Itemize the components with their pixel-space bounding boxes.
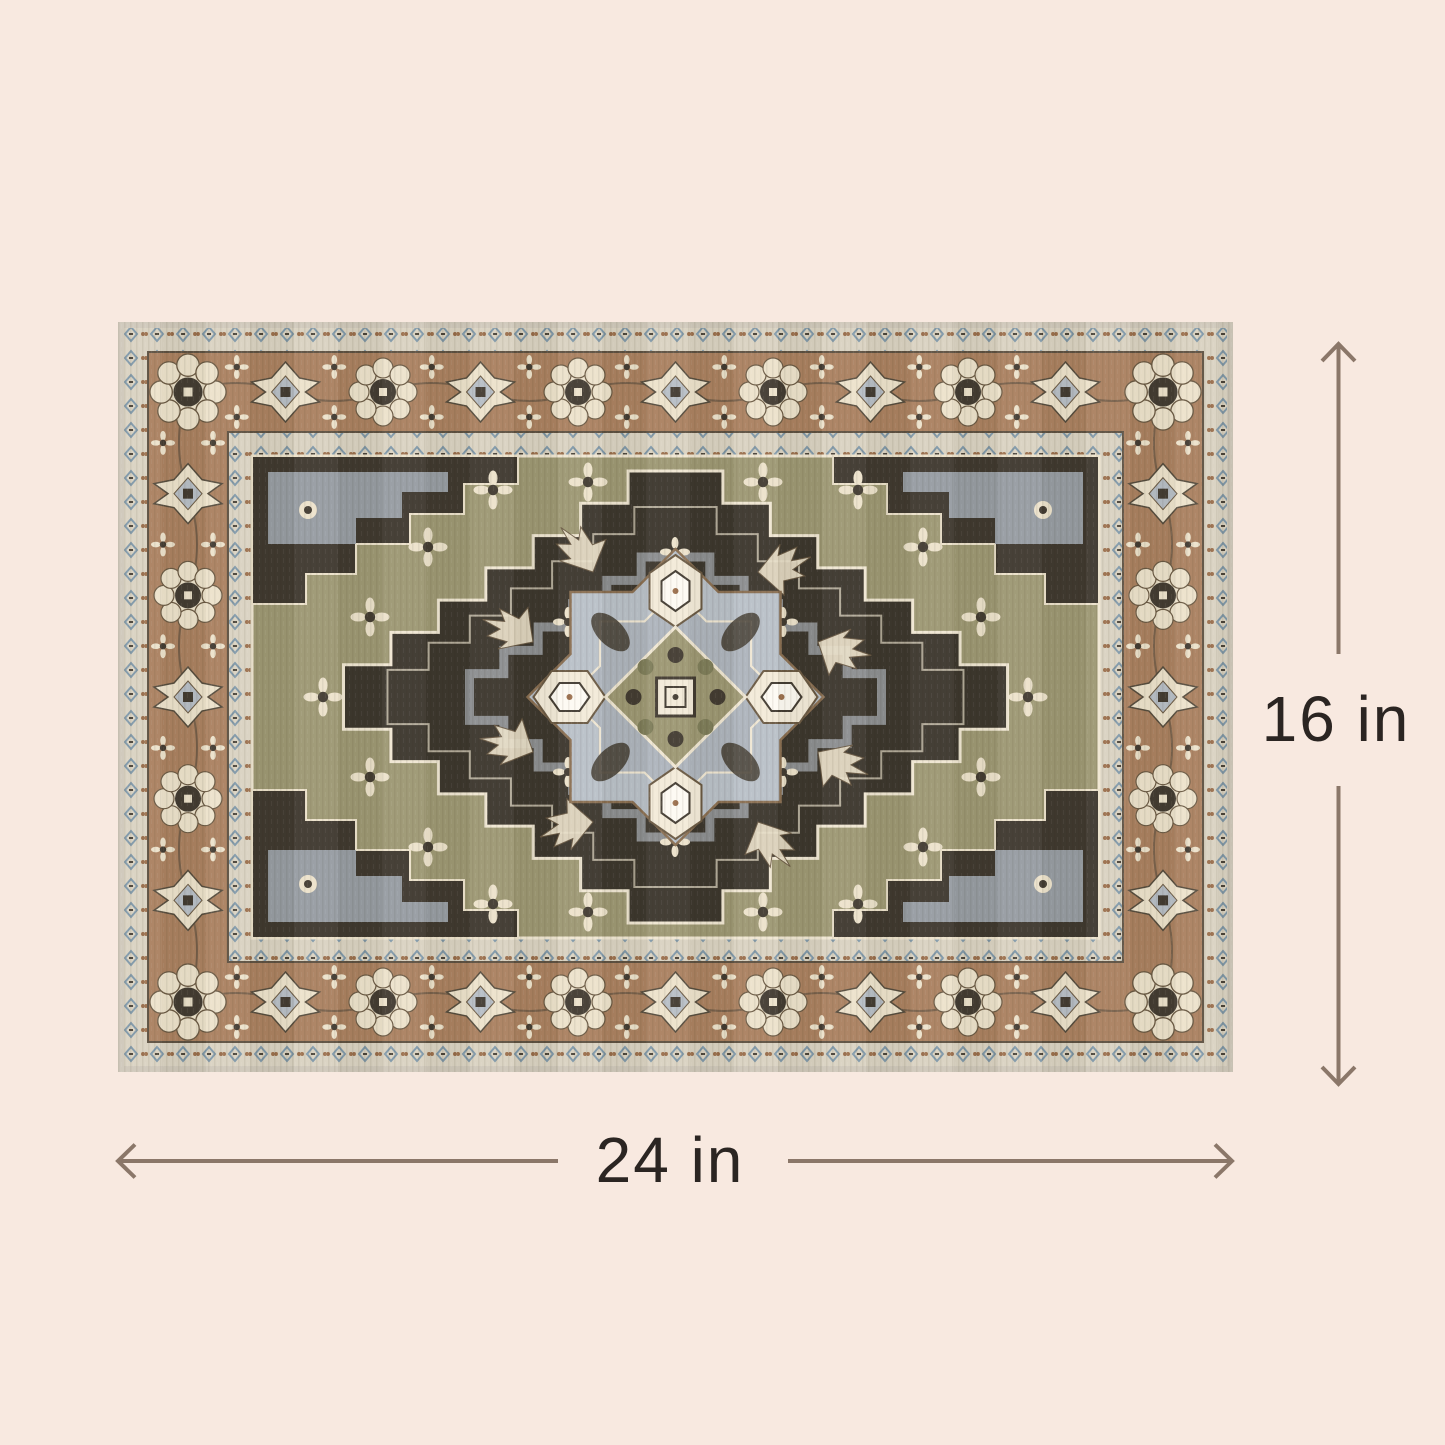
product-dimension-canvas: 16 in 24 in (0, 0, 1445, 1445)
rug-weave-texture (118, 322, 1233, 1072)
arrow-down-icon (1322, 1067, 1355, 1084)
arrow-right-icon (1215, 1145, 1232, 1178)
height-dimension-label: 16 in (1262, 682, 1411, 756)
width-dimension-label: 24 in (596, 1123, 745, 1197)
rug-image (118, 322, 1233, 1072)
arrow-left-icon (118, 1145, 135, 1178)
arrow-up-icon (1322, 344, 1355, 361)
